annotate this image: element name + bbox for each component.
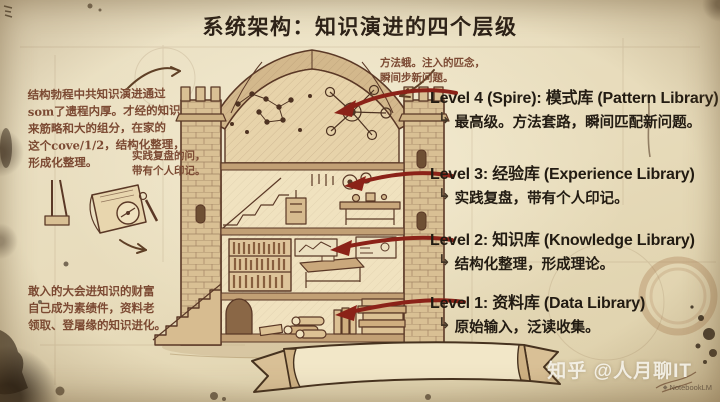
level2-label-block: Level 2: 知识库 (Knowledge Library) ↳ 结构化整理… (430, 226, 695, 274)
page-title: 系统架构：知识演进的四个层级 (0, 11, 720, 41)
annotation-bottom-left: 敢入的大会进知识的财富 自己成为素绩件，资料老 领取、登屠缘的知识进化。 (28, 283, 166, 334)
level1-label-block: Level 1: 资料库 (Data Library) ↳ 原始输入，泛读收集。 (430, 289, 645, 337)
level2-desc: 结构化整理，形成理论。 (455, 253, 615, 274)
level1-desc: 原始输入，泛读收集。 (455, 316, 600, 337)
hook-arrow-icon: ↳ (438, 111, 451, 128)
curved-arrow-notebook (120, 240, 146, 250)
notebooklm-watermark: ◆ NotebookLM (663, 383, 712, 392)
level4-label-block: Level 4 (Spire): 模式库 (Pattern Library) ↳… (430, 84, 718, 132)
annotation-mid-left: 实践复盘的问， 带有个人印记。 (132, 149, 206, 179)
zhihu-watermark: 知乎 @人月聊IT (547, 356, 692, 383)
level4-desc: 最高级。方法套路，瞬间匹配新问题。 (455, 111, 702, 132)
hook-arrow-icon: ↳ (438, 316, 451, 333)
level3-heading: Level 3: 经验库 (Experience Library) (430, 160, 695, 184)
annotation-spire: 方法蛾。注入的匹念， 瞬间步新问题。 (380, 56, 485, 86)
notebooklm-label: NotebookLM (669, 383, 712, 392)
level4-heading: Level 4 (Spire): 模式库 (Pattern Library) (430, 84, 718, 108)
notebook-compass-sketch (45, 180, 157, 233)
poster-canvas: 系统架构：知识演进的四个层级 (0, 0, 720, 402)
notebooklm-logo-icon: ◆ (663, 384, 668, 391)
level1-heading: Level 1: 资料库 (Data Library) (430, 289, 645, 313)
banner-ribbon (252, 342, 560, 392)
level3-desc: 实践复盘，带有个人印记。 (455, 187, 629, 208)
level3-label-block: Level 3: 经验库 (Experience Library) ↳ 实践复盘… (430, 160, 695, 208)
level2-heading: Level 2: 知识库 (Knowledge Library) (430, 226, 695, 250)
hook-arrow-icon: ↳ (438, 253, 451, 270)
hook-arrow-icon: ↳ (438, 187, 451, 204)
